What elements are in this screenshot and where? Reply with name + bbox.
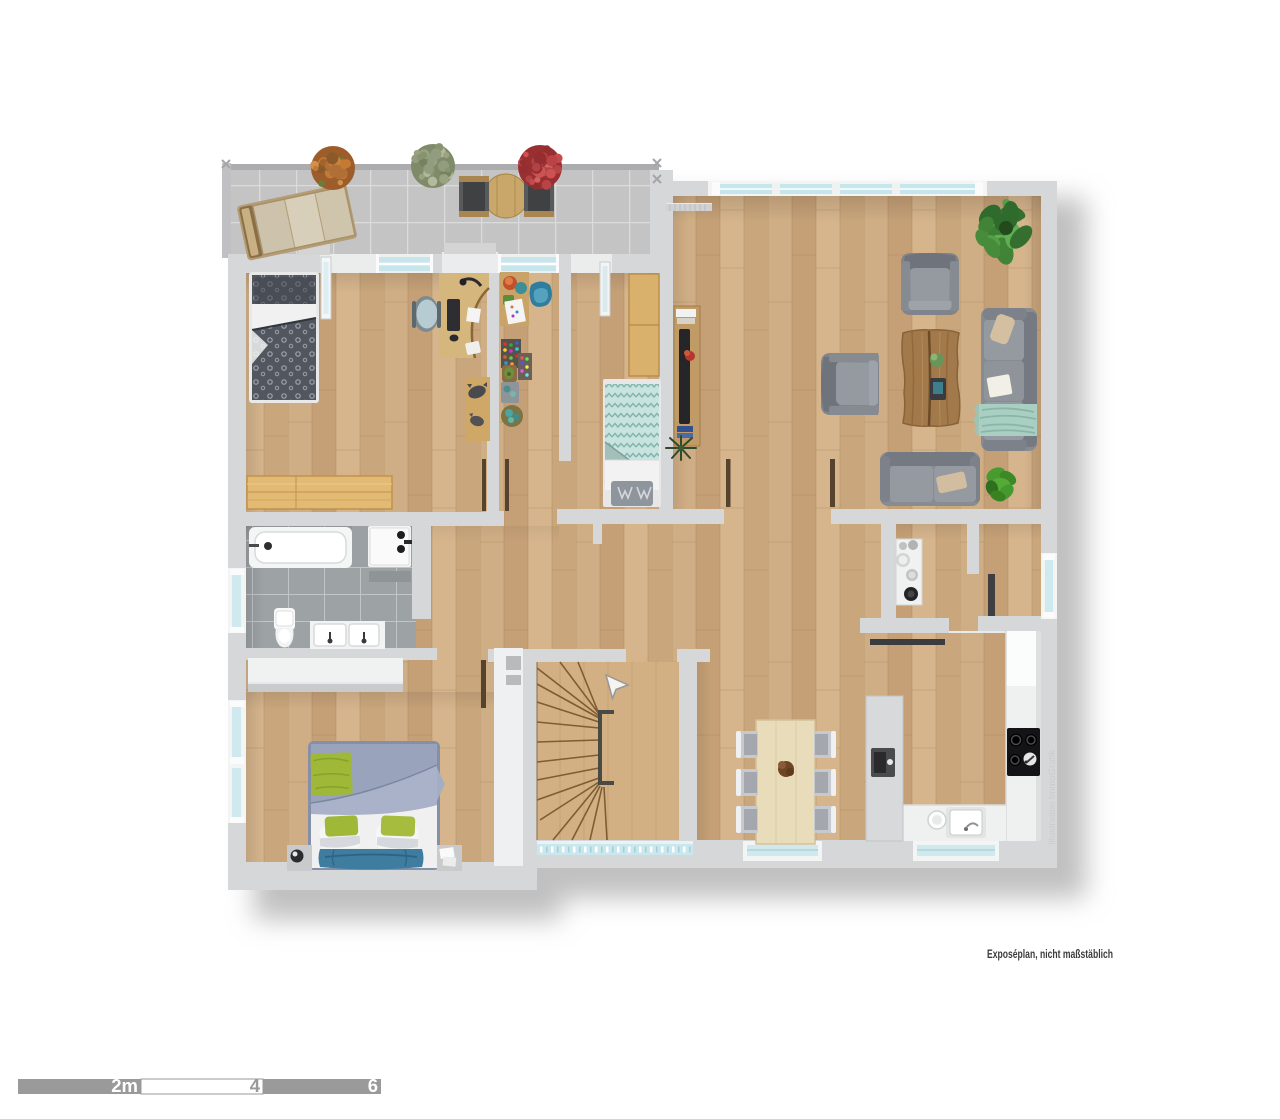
svg-text:Exposéplan, nicht maßstäblich: Exposéplan, nicht maßstäblich (987, 949, 1113, 961)
svg-text:2m: 2m (111, 1075, 138, 1096)
svg-text:6: 6 (368, 1075, 378, 1096)
svg-text:Illustration ImmoGrafik: Illustration ImmoGrafik (1047, 750, 1058, 845)
svg-text:4: 4 (250, 1075, 261, 1096)
